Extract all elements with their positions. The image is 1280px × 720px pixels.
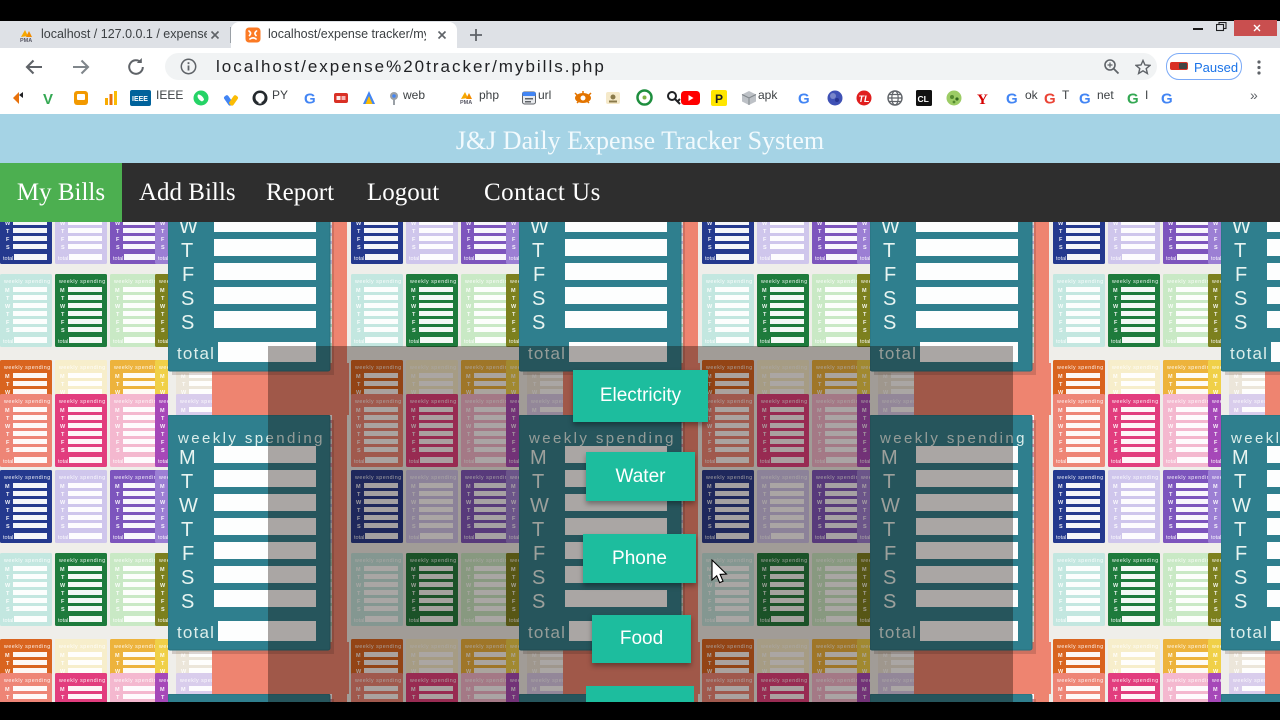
svg-text:G: G [1006,91,1018,107]
svg-text:PMA: PMA [20,38,32,44]
svg-text:PMA: PMA [460,100,472,106]
svg-text:G: G [1161,91,1173,107]
svg-text:Y: Y [977,92,988,106]
svg-text:P: P [715,92,723,106]
svg-text:TL: TL [859,94,870,104]
svg-text:IEEE: IEEE [132,96,148,103]
svg-text:G: G [1079,91,1091,107]
svg-text:G: G [1127,91,1139,107]
svg-text:CL: CL [918,94,929,104]
svg-text:V: V [43,91,53,106]
svg-text:G: G [1044,91,1056,107]
svg-text:G: G [304,91,316,107]
svg-text:G: G [798,91,810,107]
